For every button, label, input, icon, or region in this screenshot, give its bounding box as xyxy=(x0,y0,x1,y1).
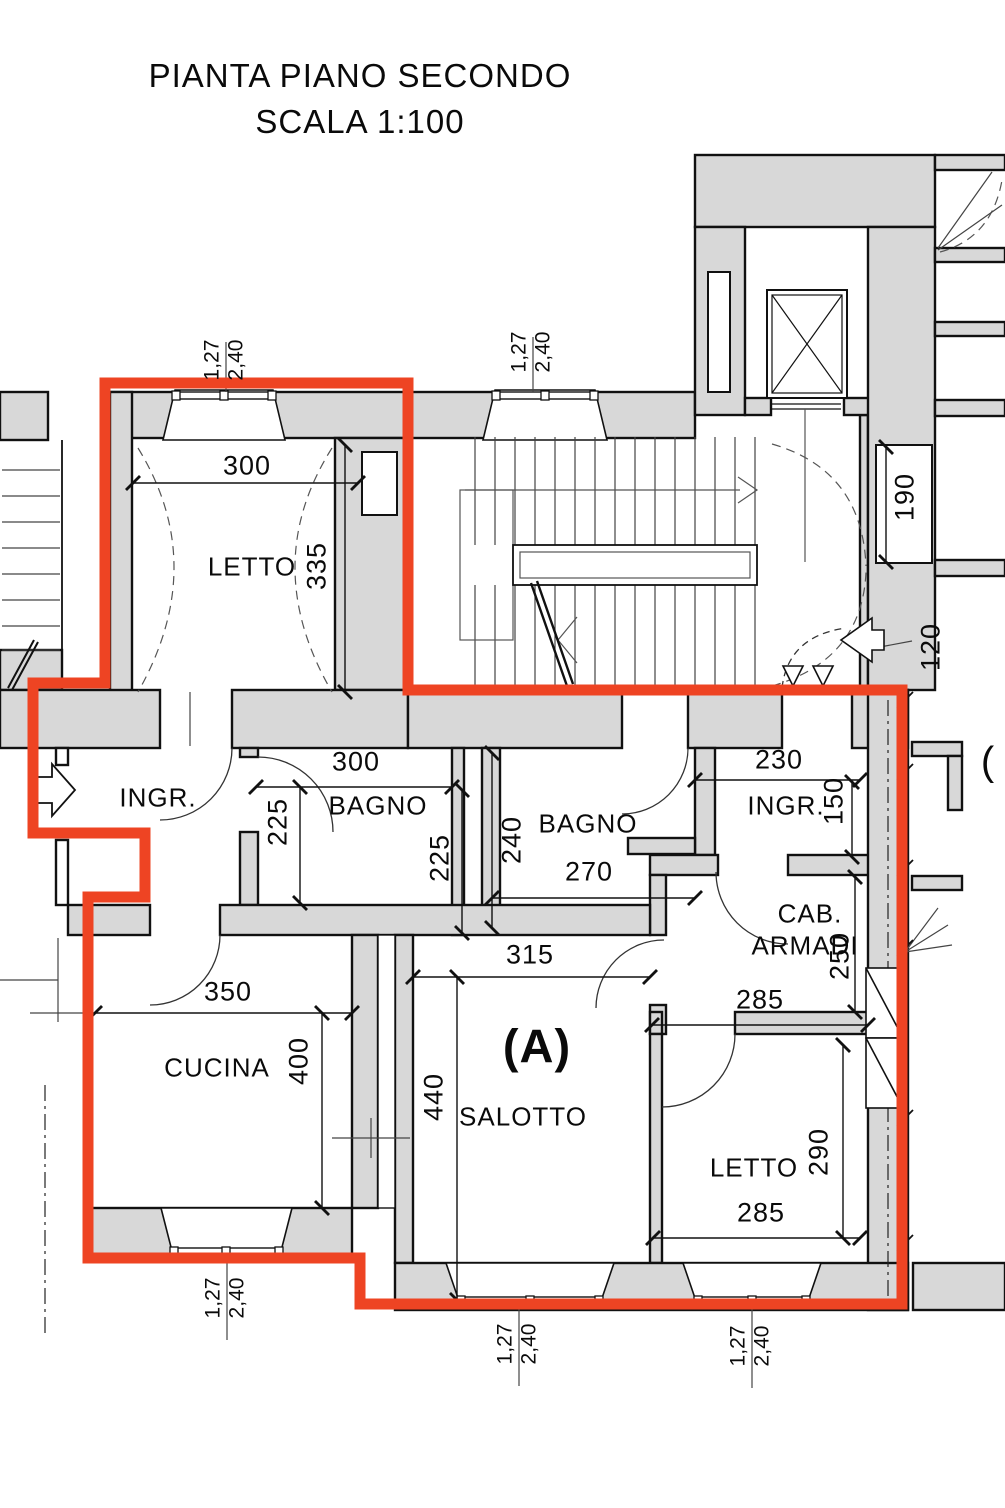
room-label-ingresso-est: INGR. xyxy=(747,791,824,822)
apartment-unit-label: (A) xyxy=(503,1019,571,1074)
window-width-value: 1,27 xyxy=(201,1278,225,1319)
floorplan-drawing xyxy=(0,0,1005,1508)
room-label-bagno-2: BAGNO xyxy=(539,809,638,840)
walls xyxy=(0,155,1005,1310)
plan-scale: SCALA 1:100 xyxy=(255,103,464,141)
room-label-cab-armadi-line1: CAB. xyxy=(778,899,843,930)
dim-bagno-1-offset: 225 xyxy=(263,798,294,846)
floor-plan-page: PIANTA PIANO SECONDO SCALA 1:100 LETTO 3… xyxy=(0,0,1005,1508)
window-height-value: 2,40 xyxy=(517,1324,541,1365)
dim-cucina-width: 350 xyxy=(204,977,252,1008)
window-height-value: 2,40 xyxy=(225,1278,249,1319)
window-annotation-salotto: 1,27 2,40 xyxy=(493,1324,540,1365)
dim-salotto-height: 440 xyxy=(419,1073,450,1121)
dim-letto-nord-height: 335 xyxy=(302,542,333,590)
room-label-bagno-1: BAGNO xyxy=(329,791,428,822)
dim-ingresso-est-width: 230 xyxy=(755,745,803,776)
dim-cab-armadi-width: 285 xyxy=(736,985,784,1016)
dim-bagno-2-width: 270 xyxy=(565,857,613,888)
dim-salotto-width: 315 xyxy=(506,940,554,971)
window-height-value: 2,40 xyxy=(531,332,555,373)
entrance-arrow xyxy=(34,764,75,816)
window-annotation-letto-nord: 1,27 2,40 xyxy=(200,340,247,381)
dim-landing-120: 120 xyxy=(916,623,947,671)
dim-cab-armadi-height: 250 xyxy=(825,932,856,980)
room-label-letto-nord: LETTO xyxy=(208,552,296,583)
dim-bagno-1-width: 300 xyxy=(332,747,380,778)
dim-letto-sud-width: 285 xyxy=(737,1198,785,1229)
window-width-value: 1,27 xyxy=(726,1326,750,1367)
room-label-letto-sud: LETTO xyxy=(710,1153,798,1184)
dim-ingresso-est-height: 150 xyxy=(819,777,850,825)
main-staircase xyxy=(460,437,757,688)
window-annotation-cucina: 1,27 2,40 xyxy=(201,1278,248,1319)
dim-cucina-height: 400 xyxy=(284,1037,315,1085)
window-width-value: 1,27 xyxy=(507,332,531,373)
dim-niche-190: 190 xyxy=(890,473,921,521)
room-label-salotto: SALOTTO xyxy=(459,1102,587,1133)
elevator xyxy=(767,290,847,562)
window-width-value: 1,27 xyxy=(200,340,224,381)
window-height-value: 2,40 xyxy=(750,1326,774,1367)
dim-letto-sud-height: 290 xyxy=(804,1128,835,1176)
dim-letto-nord-width: 300 xyxy=(223,451,271,482)
plan-title: PIANTA PIANO SECONDO xyxy=(149,57,572,95)
dim-bagno-2-height: 240 xyxy=(497,816,528,864)
window-height-value: 2,40 xyxy=(224,340,248,381)
room-label-ingresso-ovest: INGR. xyxy=(119,783,196,814)
dim-bagno-1-height: 225 xyxy=(425,834,456,882)
window-annotation-hall: 1,27 2,40 xyxy=(507,332,554,373)
window-annotation-letto-sud: 1,27 2,40 xyxy=(726,1326,773,1367)
adjacent-unit-partial-label: ( xyxy=(981,740,995,785)
window-width-value: 1,27 xyxy=(493,1324,517,1365)
room-label-cucina: CUCINA xyxy=(164,1053,270,1084)
